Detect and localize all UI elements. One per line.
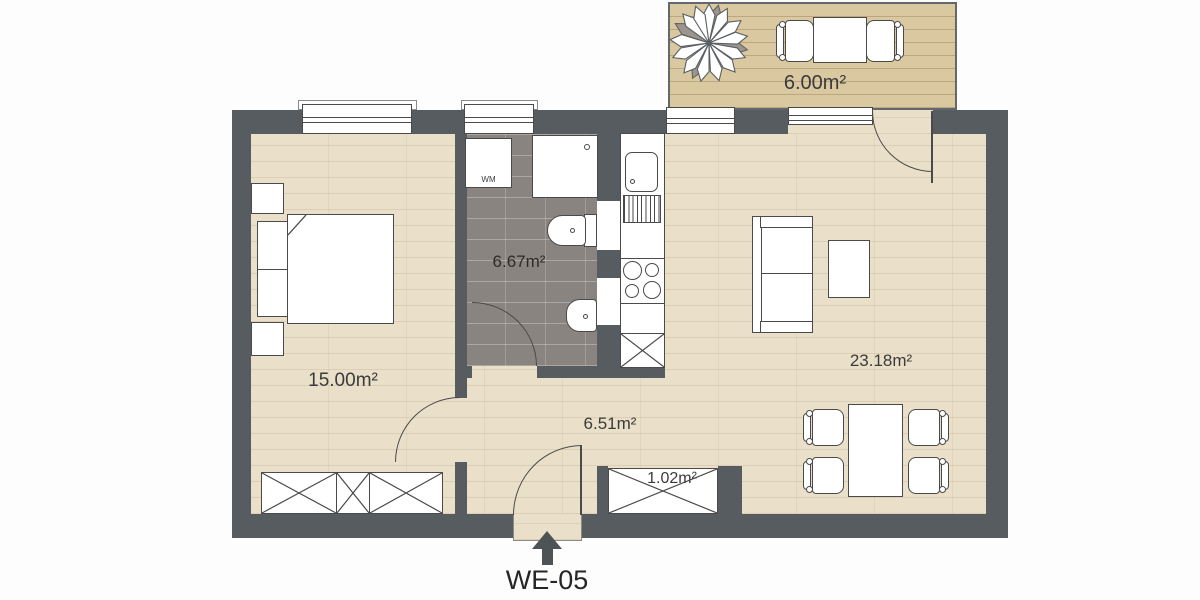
balcony-area-label: 6.00m² <box>784 72 846 95</box>
entry-arrow-shaft <box>542 548 553 565</box>
washing-machine: WM <box>465 138 512 188</box>
balcony-window-floor <box>788 124 873 134</box>
balcony-table <box>813 17 867 63</box>
wall <box>986 110 1008 538</box>
wall <box>412 110 464 134</box>
entry-door-leaf <box>580 445 582 515</box>
dining-chair <box>908 409 949 446</box>
kitchen-window <box>666 107 735 134</box>
wall <box>933 110 1008 134</box>
stove-burner <box>625 284 639 298</box>
toilet-bowl <box>547 215 586 246</box>
hallway-area-label: 6.51m² <box>584 414 637 434</box>
basin-drain <box>583 314 588 319</box>
bed-pillow <box>257 221 288 270</box>
coffee-table <box>828 240 870 298</box>
wall <box>455 366 472 378</box>
wardrobe-section <box>336 472 370 514</box>
stove-burner <box>623 261 642 280</box>
bed-pillow <box>257 269 288 317</box>
kitchen-drainer <box>623 195 661 223</box>
wardrobe-section <box>369 472 443 514</box>
unit-label: WE-05 <box>506 565 589 596</box>
wall <box>455 462 467 514</box>
wall <box>582 514 1008 538</box>
balcony-chair <box>776 20 814 62</box>
washbasin <box>566 299 597 332</box>
kitchen-sink <box>625 152 658 192</box>
washing-machine-label: WM <box>466 175 511 184</box>
nightstand <box>251 322 284 356</box>
dining-chair <box>908 457 949 494</box>
wall <box>597 250 620 278</box>
counter-line <box>620 303 665 304</box>
counter-line <box>620 258 665 259</box>
wall-niche <box>597 278 620 325</box>
wall <box>232 514 513 538</box>
stove-burner <box>645 263 659 277</box>
bathroom-window <box>464 104 534 134</box>
sink-drain <box>630 179 635 184</box>
floor-plan: 6.00m² <box>0 0 1200 600</box>
shower-drain <box>584 144 590 150</box>
bed-fold <box>288 215 310 237</box>
nightstand <box>251 183 284 214</box>
sofa-armrest <box>760 321 813 333</box>
entry-arrow-icon <box>532 531 562 549</box>
wall <box>735 110 788 134</box>
toilet-flush <box>570 228 575 233</box>
closet-area-label: 1.02m² <box>647 470 697 488</box>
wall <box>718 466 742 514</box>
balcony-chair <box>866 20 904 62</box>
dining-chair <box>803 457 844 494</box>
sofa-cushion <box>761 227 813 274</box>
plant-icon <box>668 2 750 84</box>
balcony-window <box>788 107 873 125</box>
dining-table <box>848 404 903 497</box>
living-room-area-label: 23.18m² <box>850 351 912 371</box>
wall <box>597 325 620 378</box>
balcony-door-leaf <box>931 111 933 183</box>
wall <box>597 466 608 514</box>
wall <box>597 132 620 201</box>
wall <box>232 110 302 134</box>
stove-burner <box>643 281 661 299</box>
bedroom-area-label: 15.00m² <box>308 370 378 392</box>
kitchen-cabinet <box>620 333 665 368</box>
bathroom-area-label: 6.67m² <box>493 252 546 272</box>
wall <box>232 110 251 538</box>
sofa-cushion <box>761 273 813 322</box>
wall <box>534 110 666 134</box>
wardrobe-section <box>261 472 337 514</box>
wall-niche <box>597 201 620 250</box>
bedroom-window <box>302 104 412 134</box>
dining-chair <box>803 409 844 446</box>
